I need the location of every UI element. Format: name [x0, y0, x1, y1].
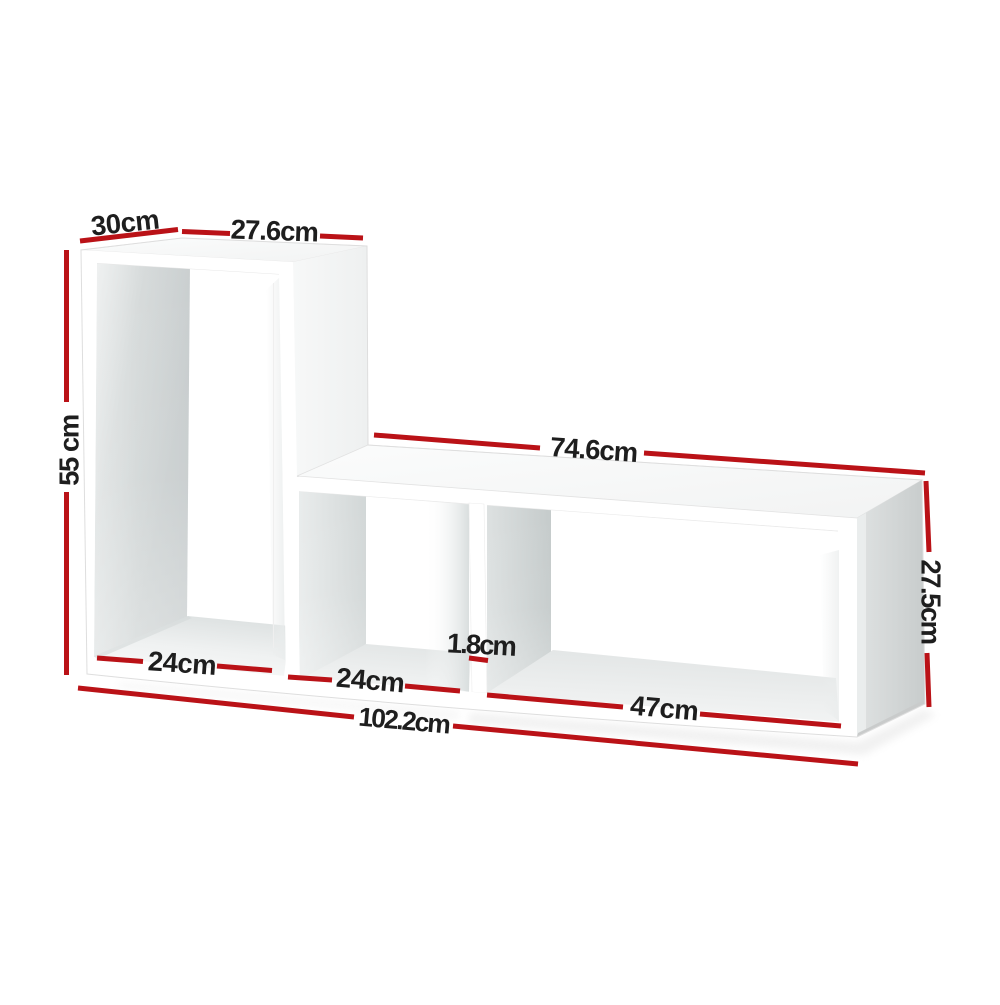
svg-text:47cm: 47cm — [629, 690, 700, 727]
svg-text:24cm: 24cm — [147, 645, 217, 681]
svg-text:24cm: 24cm — [335, 662, 406, 699]
svg-text:74.6cm: 74.6cm — [549, 431, 638, 468]
svg-text:27.5cm: 27.5cm — [916, 559, 947, 643]
svg-text:55 cm: 55 cm — [53, 415, 84, 486]
svg-text:27.6cm: 27.6cm — [230, 213, 318, 247]
svg-text:1.8cm: 1.8cm — [446, 627, 516, 662]
